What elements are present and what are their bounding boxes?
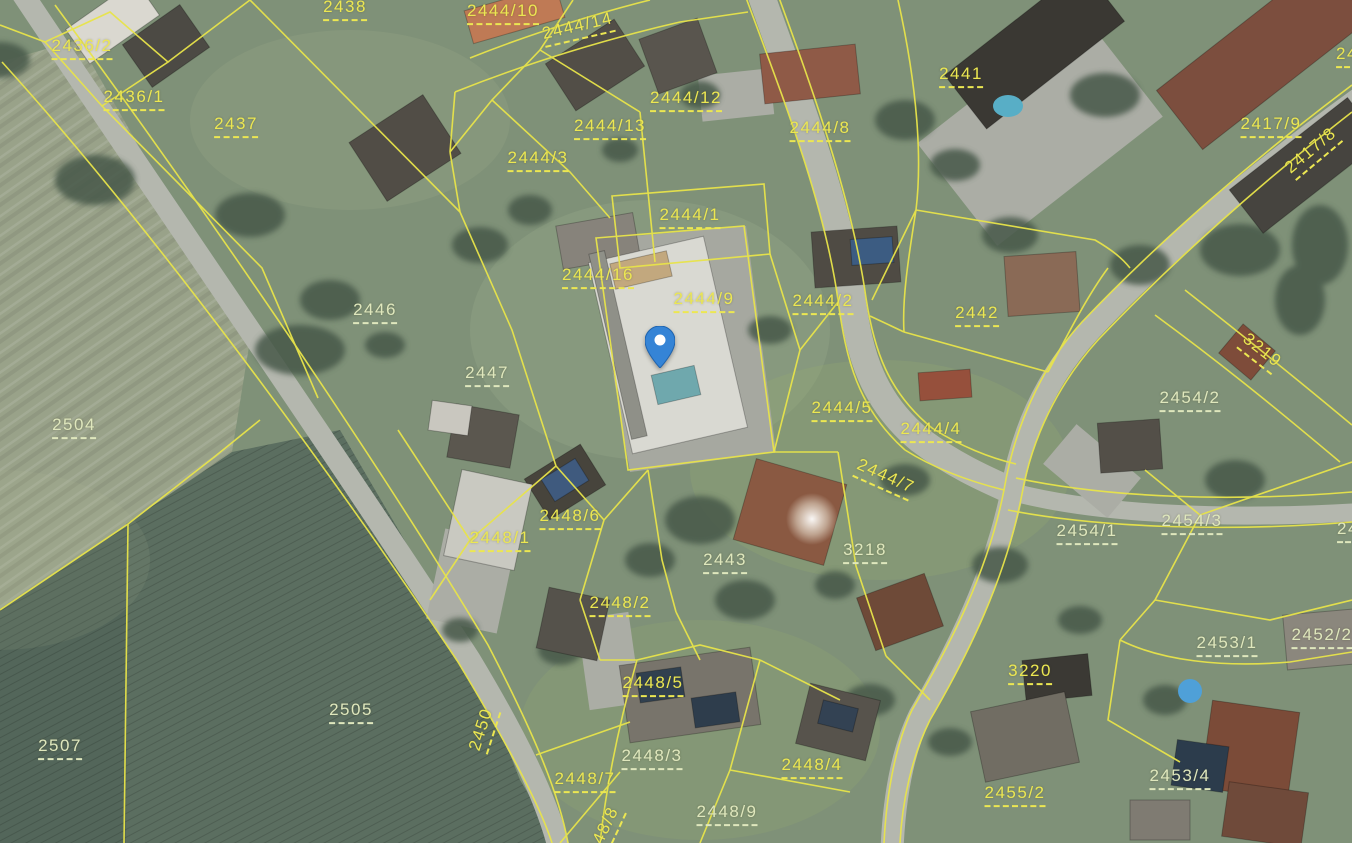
aerial-map[interactable]: 2436/22436/1243724382444/102444/142444/1… bbox=[0, 0, 1352, 843]
pin-body bbox=[645, 326, 675, 368]
cadastral-boundary-layer bbox=[0, 0, 1352, 843]
location-pin[interactable] bbox=[645, 326, 675, 368]
pin-hole bbox=[655, 335, 666, 346]
